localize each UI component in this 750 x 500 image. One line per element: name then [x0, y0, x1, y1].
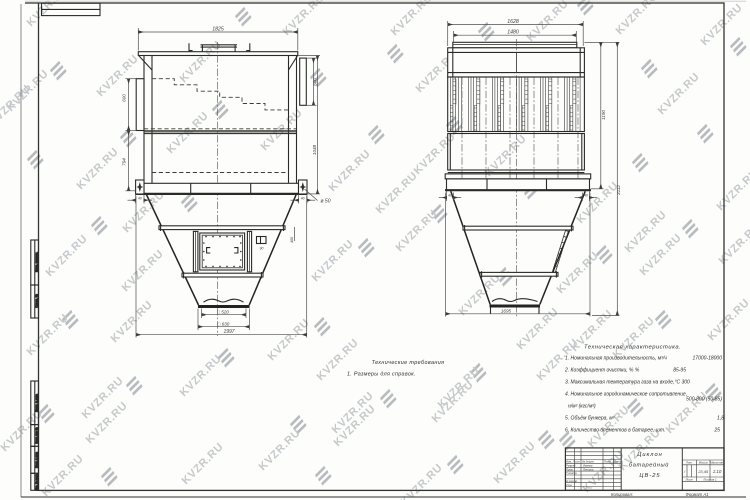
svg-text:1695: 1695 [501, 308, 512, 313]
svg-text:85-95: 85-95 [673, 368, 686, 374]
svg-text:1628: 1628 [507, 19, 519, 25]
svg-text:400: 400 [290, 236, 294, 243]
svg-text:Лист: Лист [684, 478, 693, 482]
svg-text:Технические требования: Технические требования [372, 360, 445, 366]
svg-text:17000-18000: 17000-18000 [693, 356, 723, 362]
svg-text:40: 40 [138, 196, 142, 200]
svg-text:Циклон: Циклон [637, 452, 662, 458]
svg-text:1997: 1997 [223, 329, 234, 335]
svg-text:1. Размеры для справок.: 1. Размеры для справок. [347, 372, 416, 378]
svg-text:Подп. и дата: Подп. и дата [34, 394, 38, 412]
svg-text:Перв. примен.: Перв. примен. [34, 252, 38, 272]
svg-text:40: 40 [448, 194, 452, 198]
svg-text:1:10: 1:10 [713, 469, 722, 474]
svg-text:600: 600 [313, 78, 318, 86]
svg-text:ЦВ-25: ЦВ-25 [639, 473, 660, 479]
svg-text:500-800 (50-85): 500-800 (50-85) [686, 397, 722, 403]
svg-text:3. Максимальная температура: 3. Максимальная температура газа на вход… [565, 380, 690, 386]
svg-text:□ 630: □ 630 [218, 321, 230, 326]
svg-text:1825: 1825 [212, 26, 224, 32]
svg-text:Взам. инв №: Взам. инв № [34, 427, 38, 443]
svg-text:40: 40 [301, 196, 305, 200]
svg-text:1. Номинальная производительн: 1. Номинальная производительность, м³/ч [565, 356, 667, 362]
svg-text:Масса: Масса [699, 461, 708, 465]
svg-text:Лит.: Лит. [685, 461, 693, 465]
svg-text:5. Объём бункера, м³: 5. Объём бункера, м³ [565, 416, 615, 422]
svg-text:Справ. №: Справ. № [34, 293, 38, 307]
svg-text:Подп. и дата: Подп. и дата [34, 452, 38, 468]
svg-text:Листов 1: Листов 1 [702, 478, 717, 482]
svg-text:Дата: Дата [613, 460, 622, 464]
svg-text:1480: 1480 [507, 30, 519, 36]
svg-text:6. Количество элементов в б: 6. Количество элементов в батарее, шт. [565, 428, 665, 434]
svg-text:Утв.: Утв. [566, 483, 573, 487]
svg-text:Т.контр.: Т.контр. [566, 471, 578, 475]
svg-text:1190: 1190 [601, 110, 606, 120]
svg-text:батарейный: батарейный [629, 461, 669, 468]
svg-text:1048: 1048 [312, 144, 317, 155]
svg-text:794: 794 [122, 158, 127, 166]
svg-text:Подп.: Подп. [604, 460, 612, 464]
svg-text:1,8: 1,8 [717, 416, 724, 422]
svg-text:Копировал:: Копировал: [611, 492, 633, 497]
svg-text:40: 40 [584, 194, 588, 198]
svg-text:Формат А1: Формат А1 [686, 492, 709, 497]
svg-text:3112: 3112 [616, 185, 621, 195]
svg-text:н/м² (кгс/м²): н/м² (кгс/м²) [568, 404, 596, 410]
svg-text:90: 90 [260, 247, 264, 251]
svg-text:25: 25 [713, 428, 720, 434]
svg-text:ø 50: ø 50 [320, 199, 330, 205]
svg-text:600: 600 [122, 94, 127, 102]
svg-text:Техническая характеристика.: Техническая характеристика. [584, 345, 681, 351]
svg-text:Инв. № подл.: Инв. № подл. [34, 473, 38, 490]
svg-text:Петров: Петров [583, 467, 594, 471]
svg-text:□ 520: □ 520 [217, 309, 229, 314]
svg-text:23,45: 23,45 [697, 469, 709, 474]
svg-text:Масштаб: Масштаб [710, 461, 724, 465]
svg-text:2. Коэффициент очистки, % %: 2. Коэффициент очистки, % % [564, 368, 640, 374]
svg-text:4. Номинальное аэродинамическ: 4. Номинальное аэродинамическое сопротив… [565, 392, 687, 398]
